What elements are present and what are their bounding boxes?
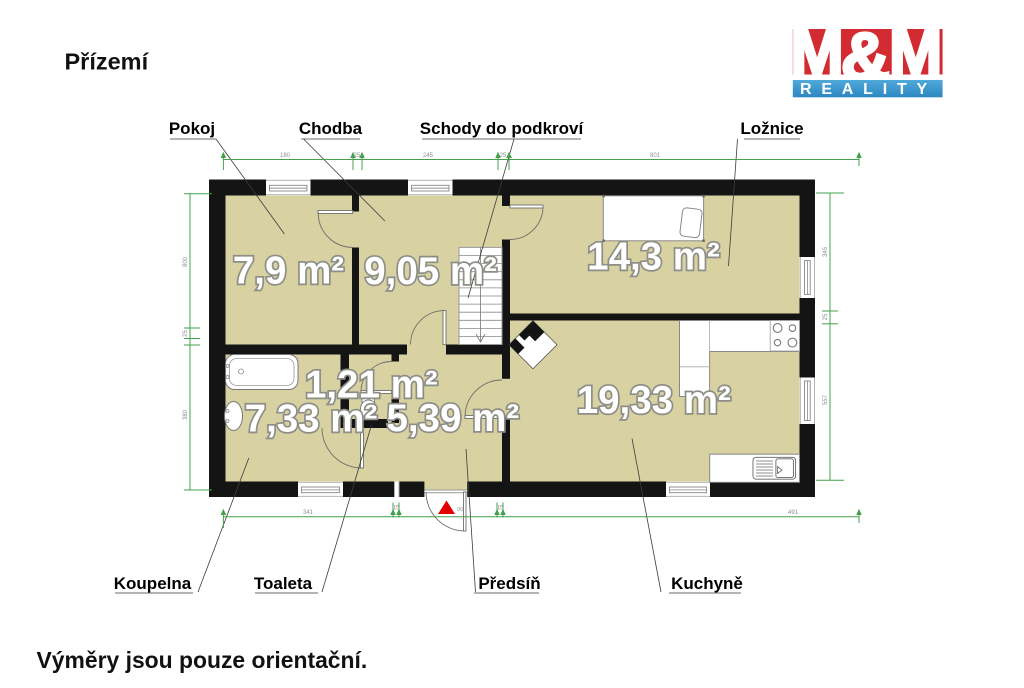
svg-text:245: 245 — [423, 153, 434, 159]
svg-text:M: M — [790, 17, 843, 89]
svg-text:Chodba: Chodba — [299, 119, 363, 138]
svg-text:345: 345 — [823, 246, 829, 257]
svg-text:Přízemí: Přízemí — [65, 49, 150, 75]
svg-text:180: 180 — [280, 153, 291, 159]
svg-text:15: 15 — [497, 506, 504, 512]
svg-text:Předsíň: Předsíň — [478, 574, 540, 593]
svg-text:90: 90 — [457, 507, 463, 513]
svg-text:15: 15 — [393, 506, 400, 512]
svg-text:REALITY: REALITY — [800, 81, 937, 98]
svg-text:1,21 m²: 1,21 m² — [305, 364, 438, 407]
svg-text:19,33 m²: 19,33 m² — [577, 379, 731, 422]
svg-text:341: 341 — [303, 510, 314, 516]
svg-text:Ložnice: Ložnice — [740, 119, 803, 138]
svg-text:7,9 m²: 7,9 m² — [233, 250, 344, 293]
svg-text:Kuchyně: Kuchyně — [671, 574, 743, 593]
svg-text:Koupelna: Koupelna — [114, 574, 192, 593]
svg-text:Výměry jsou pouze orientační.: Výměry jsou pouze orientační. — [37, 647, 368, 673]
svg-text:Toaleta: Toaleta — [254, 574, 313, 593]
svg-text:801: 801 — [650, 153, 661, 159]
svg-text:25: 25 — [354, 153, 361, 159]
svg-text:14,3 m²: 14,3 m² — [587, 236, 720, 279]
svg-text:25: 25 — [183, 330, 189, 337]
svg-text:9,05 m²: 9,05 m² — [364, 250, 497, 293]
svg-text:380: 380 — [183, 409, 189, 420]
svg-text:M: M — [889, 17, 942, 89]
svg-text:Schody do podkroví: Schody do podkroví — [420, 119, 585, 138]
svg-text:557: 557 — [823, 394, 829, 405]
svg-text:Pokoj: Pokoj — [169, 119, 215, 138]
svg-text:491: 491 — [788, 510, 799, 516]
svg-text:25: 25 — [500, 153, 507, 159]
svg-text:800: 800 — [183, 256, 189, 267]
svg-text:25: 25 — [823, 313, 829, 320]
